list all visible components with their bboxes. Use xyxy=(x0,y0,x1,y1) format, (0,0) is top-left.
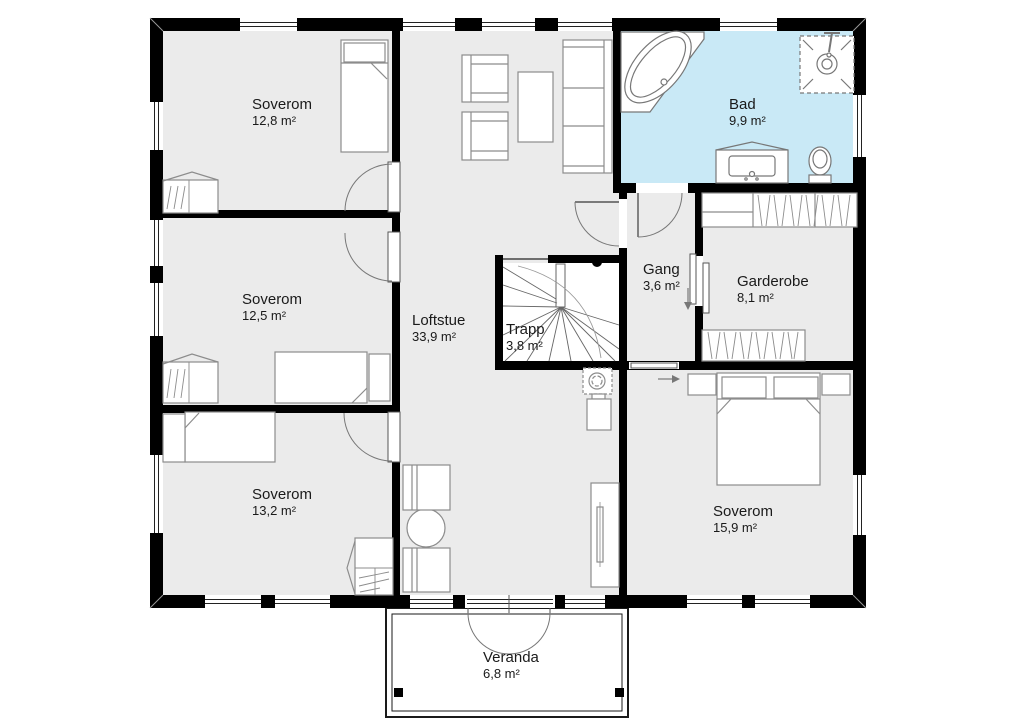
window xyxy=(205,595,261,608)
shower-symbol xyxy=(800,33,854,93)
sliding-door-soverom-se xyxy=(629,362,679,369)
bed-double-symbol xyxy=(717,373,820,485)
wall-bedrooms-loftstue xyxy=(392,31,400,595)
room-label-soverom-w: Soverom 12,5 m² xyxy=(242,291,302,323)
window xyxy=(755,595,810,608)
room-area: 15,9 m² xyxy=(713,520,773,535)
room-name: Soverom xyxy=(242,291,302,308)
floor-plan: Soverom 12,8 m² Soverom 12,5 m² Soverom … xyxy=(0,0,1018,720)
room-label-loftstue: Loftstue 33,9 m² xyxy=(412,312,465,344)
closet-unit-symbol xyxy=(702,193,857,227)
wall-stair-left xyxy=(495,255,503,361)
sliding-door-garderobe xyxy=(690,254,709,313)
room-area: 13,2 m² xyxy=(252,503,312,518)
room-label-trapp: Trapp 3,8 m² xyxy=(506,321,545,353)
room-area: 3,8 m² xyxy=(506,338,545,353)
wall-loftstue-bad xyxy=(613,31,621,183)
room-label-garderobe: Garderobe 8,1 m² xyxy=(737,273,809,305)
room-name: Bad xyxy=(729,96,766,113)
window xyxy=(150,220,163,266)
room-name: Gang xyxy=(643,261,680,278)
sofa-symbol xyxy=(563,40,612,173)
window xyxy=(240,18,297,31)
window xyxy=(482,18,535,31)
bed-single-symbol xyxy=(341,40,388,152)
nightstand-symbol xyxy=(688,374,716,395)
veranda-post xyxy=(394,688,403,697)
floor-plan-drawing xyxy=(0,0,1018,720)
window xyxy=(403,18,455,31)
stair-post-dot xyxy=(592,257,602,267)
room-label-gang: Gang 3,6 m² xyxy=(643,261,680,293)
toilet-symbol xyxy=(809,147,831,183)
wood-stove-symbol xyxy=(583,368,612,430)
window xyxy=(853,95,866,157)
veranda-post xyxy=(615,688,624,697)
coffee-table-symbol xyxy=(518,72,553,142)
tv-bench-symbol xyxy=(591,483,619,587)
window xyxy=(558,18,612,31)
table-and-chairs-symbol xyxy=(403,465,450,592)
wall-stair-top xyxy=(548,255,619,263)
room-name: Soverom xyxy=(713,503,773,520)
armchair-symbol xyxy=(462,112,508,160)
room-area: 6,8 m² xyxy=(483,666,539,681)
bed-single-symbol xyxy=(275,352,390,403)
room-name: Trapp xyxy=(506,321,545,338)
room-label-soverom-nw: Soverom 12,8 m² xyxy=(252,96,312,128)
room-area: 12,8 m² xyxy=(252,113,312,128)
window xyxy=(720,18,777,31)
room-name: Soverom xyxy=(252,486,312,503)
window xyxy=(687,595,742,608)
room-label-veranda: Veranda 6,8 m² xyxy=(483,649,539,681)
window xyxy=(150,283,163,336)
room-area: 33,9 m² xyxy=(412,329,465,344)
room-name: Loftstue xyxy=(412,312,465,329)
window xyxy=(150,102,163,150)
room-area: 9,9 m² xyxy=(729,113,766,128)
room-name: Veranda xyxy=(483,649,539,666)
armchair-symbol xyxy=(462,55,508,102)
window xyxy=(853,475,866,535)
wall-loftstue-right xyxy=(619,193,627,595)
bed-single-symbol xyxy=(163,412,275,462)
room-name: Soverom xyxy=(252,96,312,113)
window xyxy=(275,595,330,608)
closet-unit-symbol xyxy=(702,330,805,361)
wall-mid-horizontal xyxy=(495,361,866,370)
room-area: 8,1 m² xyxy=(737,290,809,305)
room-area: 12,5 m² xyxy=(242,308,302,323)
nightstand-symbol xyxy=(822,374,850,395)
room-name: Garderobe xyxy=(737,273,809,290)
window xyxy=(150,455,163,533)
room-label-soverom-se: Soverom 15,9 m² xyxy=(713,503,773,535)
window xyxy=(565,595,605,608)
room-label-soverom-sw: Soverom 13,2 m² xyxy=(252,486,312,518)
room-area: 3,6 m² xyxy=(643,278,680,293)
window xyxy=(410,595,453,608)
room-label-bad: Bad 9,9 m² xyxy=(729,96,766,128)
